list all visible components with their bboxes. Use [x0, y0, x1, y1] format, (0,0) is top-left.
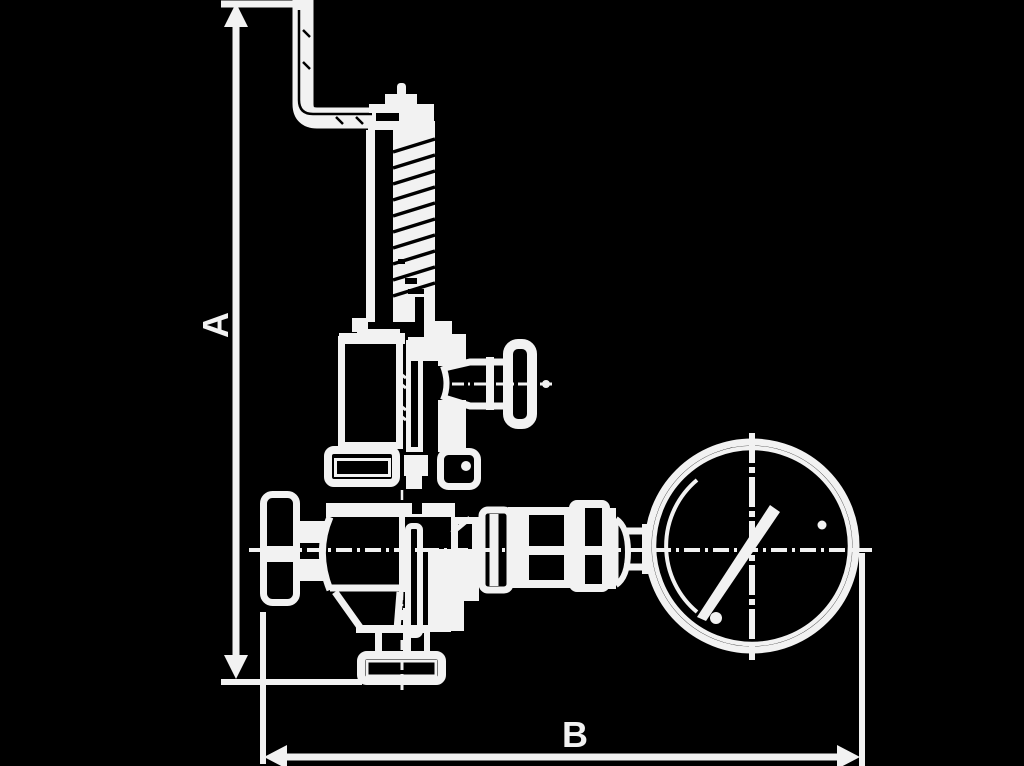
svg-text:A: A	[195, 312, 236, 338]
svg-text:B: B	[562, 714, 588, 755]
